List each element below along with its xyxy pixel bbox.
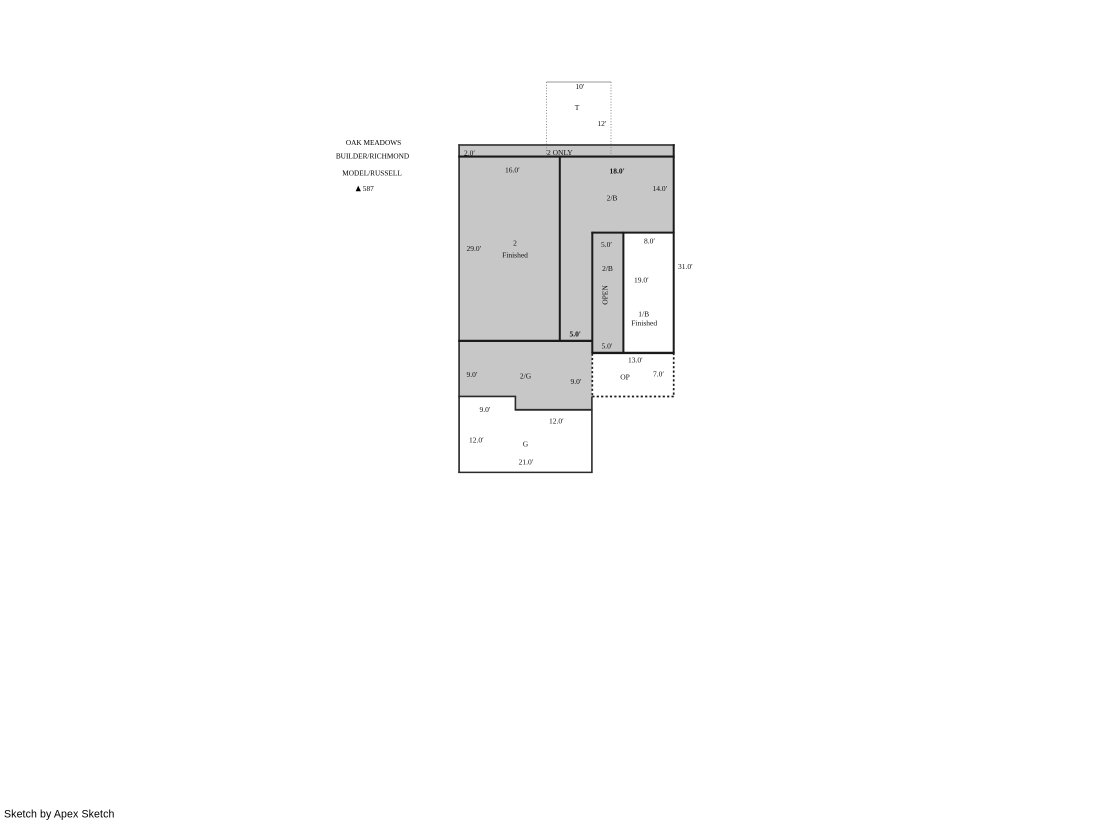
svg-text:9.0′: 9.0′ <box>571 377 582 386</box>
svg-text:2/B: 2/B <box>607 194 618 203</box>
svg-text:7.0′: 7.0′ <box>653 370 664 379</box>
svg-text:9.0′: 9.0′ <box>480 405 491 414</box>
svg-text:19.0′: 19.0′ <box>634 276 649 285</box>
svg-text:21.0′: 21.0′ <box>519 458 534 467</box>
svg-text:OPEN: OPEN <box>601 285 610 305</box>
svg-text:8.0′: 8.0′ <box>644 237 655 246</box>
svg-text:5.0′: 5.0′ <box>602 342 613 351</box>
svg-text:T: T <box>575 103 580 112</box>
svg-text:5.0′: 5.0′ <box>601 240 612 249</box>
svg-text:OAK MEADOWS: OAK MEADOWS <box>346 138 401 147</box>
svg-text:Sketch by Apex Sketch: Sketch by Apex Sketch <box>4 808 114 820</box>
svg-text:Finished: Finished <box>502 251 528 260</box>
svg-text:MODEL/RUSSELL: MODEL/RUSSELL <box>342 169 402 178</box>
svg-text:G: G <box>523 440 529 449</box>
svg-text:13.0′: 13.0′ <box>628 356 643 365</box>
svg-text:2/B: 2/B <box>602 264 613 273</box>
svg-text:2: 2 <box>513 239 517 248</box>
svg-text:12′: 12′ <box>597 119 607 128</box>
svg-text:31.0′: 31.0′ <box>678 262 693 271</box>
svg-text:Finished: Finished <box>631 319 657 328</box>
svg-text:BUILDER/RICHMOND: BUILDER/RICHMOND <box>336 152 409 161</box>
svg-text:5.0′: 5.0′ <box>570 329 581 338</box>
svg-text:12.0′: 12.0′ <box>549 417 564 426</box>
svg-text:2/G: 2/G <box>520 372 532 381</box>
svg-text:18.0′: 18.0′ <box>610 167 625 176</box>
svg-text:14.0′: 14.0′ <box>653 184 668 193</box>
svg-text:29.0′: 29.0′ <box>467 244 482 253</box>
svg-text:1/B: 1/B <box>638 310 649 319</box>
svg-text:9.0′: 9.0′ <box>467 370 478 379</box>
svg-text:16.0′: 16.0′ <box>505 166 520 175</box>
svg-text:12.0′: 12.0′ <box>469 436 484 445</box>
svg-text:10′: 10′ <box>575 82 585 91</box>
svg-text:587: 587 <box>363 184 374 193</box>
svg-text:OP: OP <box>620 373 630 382</box>
